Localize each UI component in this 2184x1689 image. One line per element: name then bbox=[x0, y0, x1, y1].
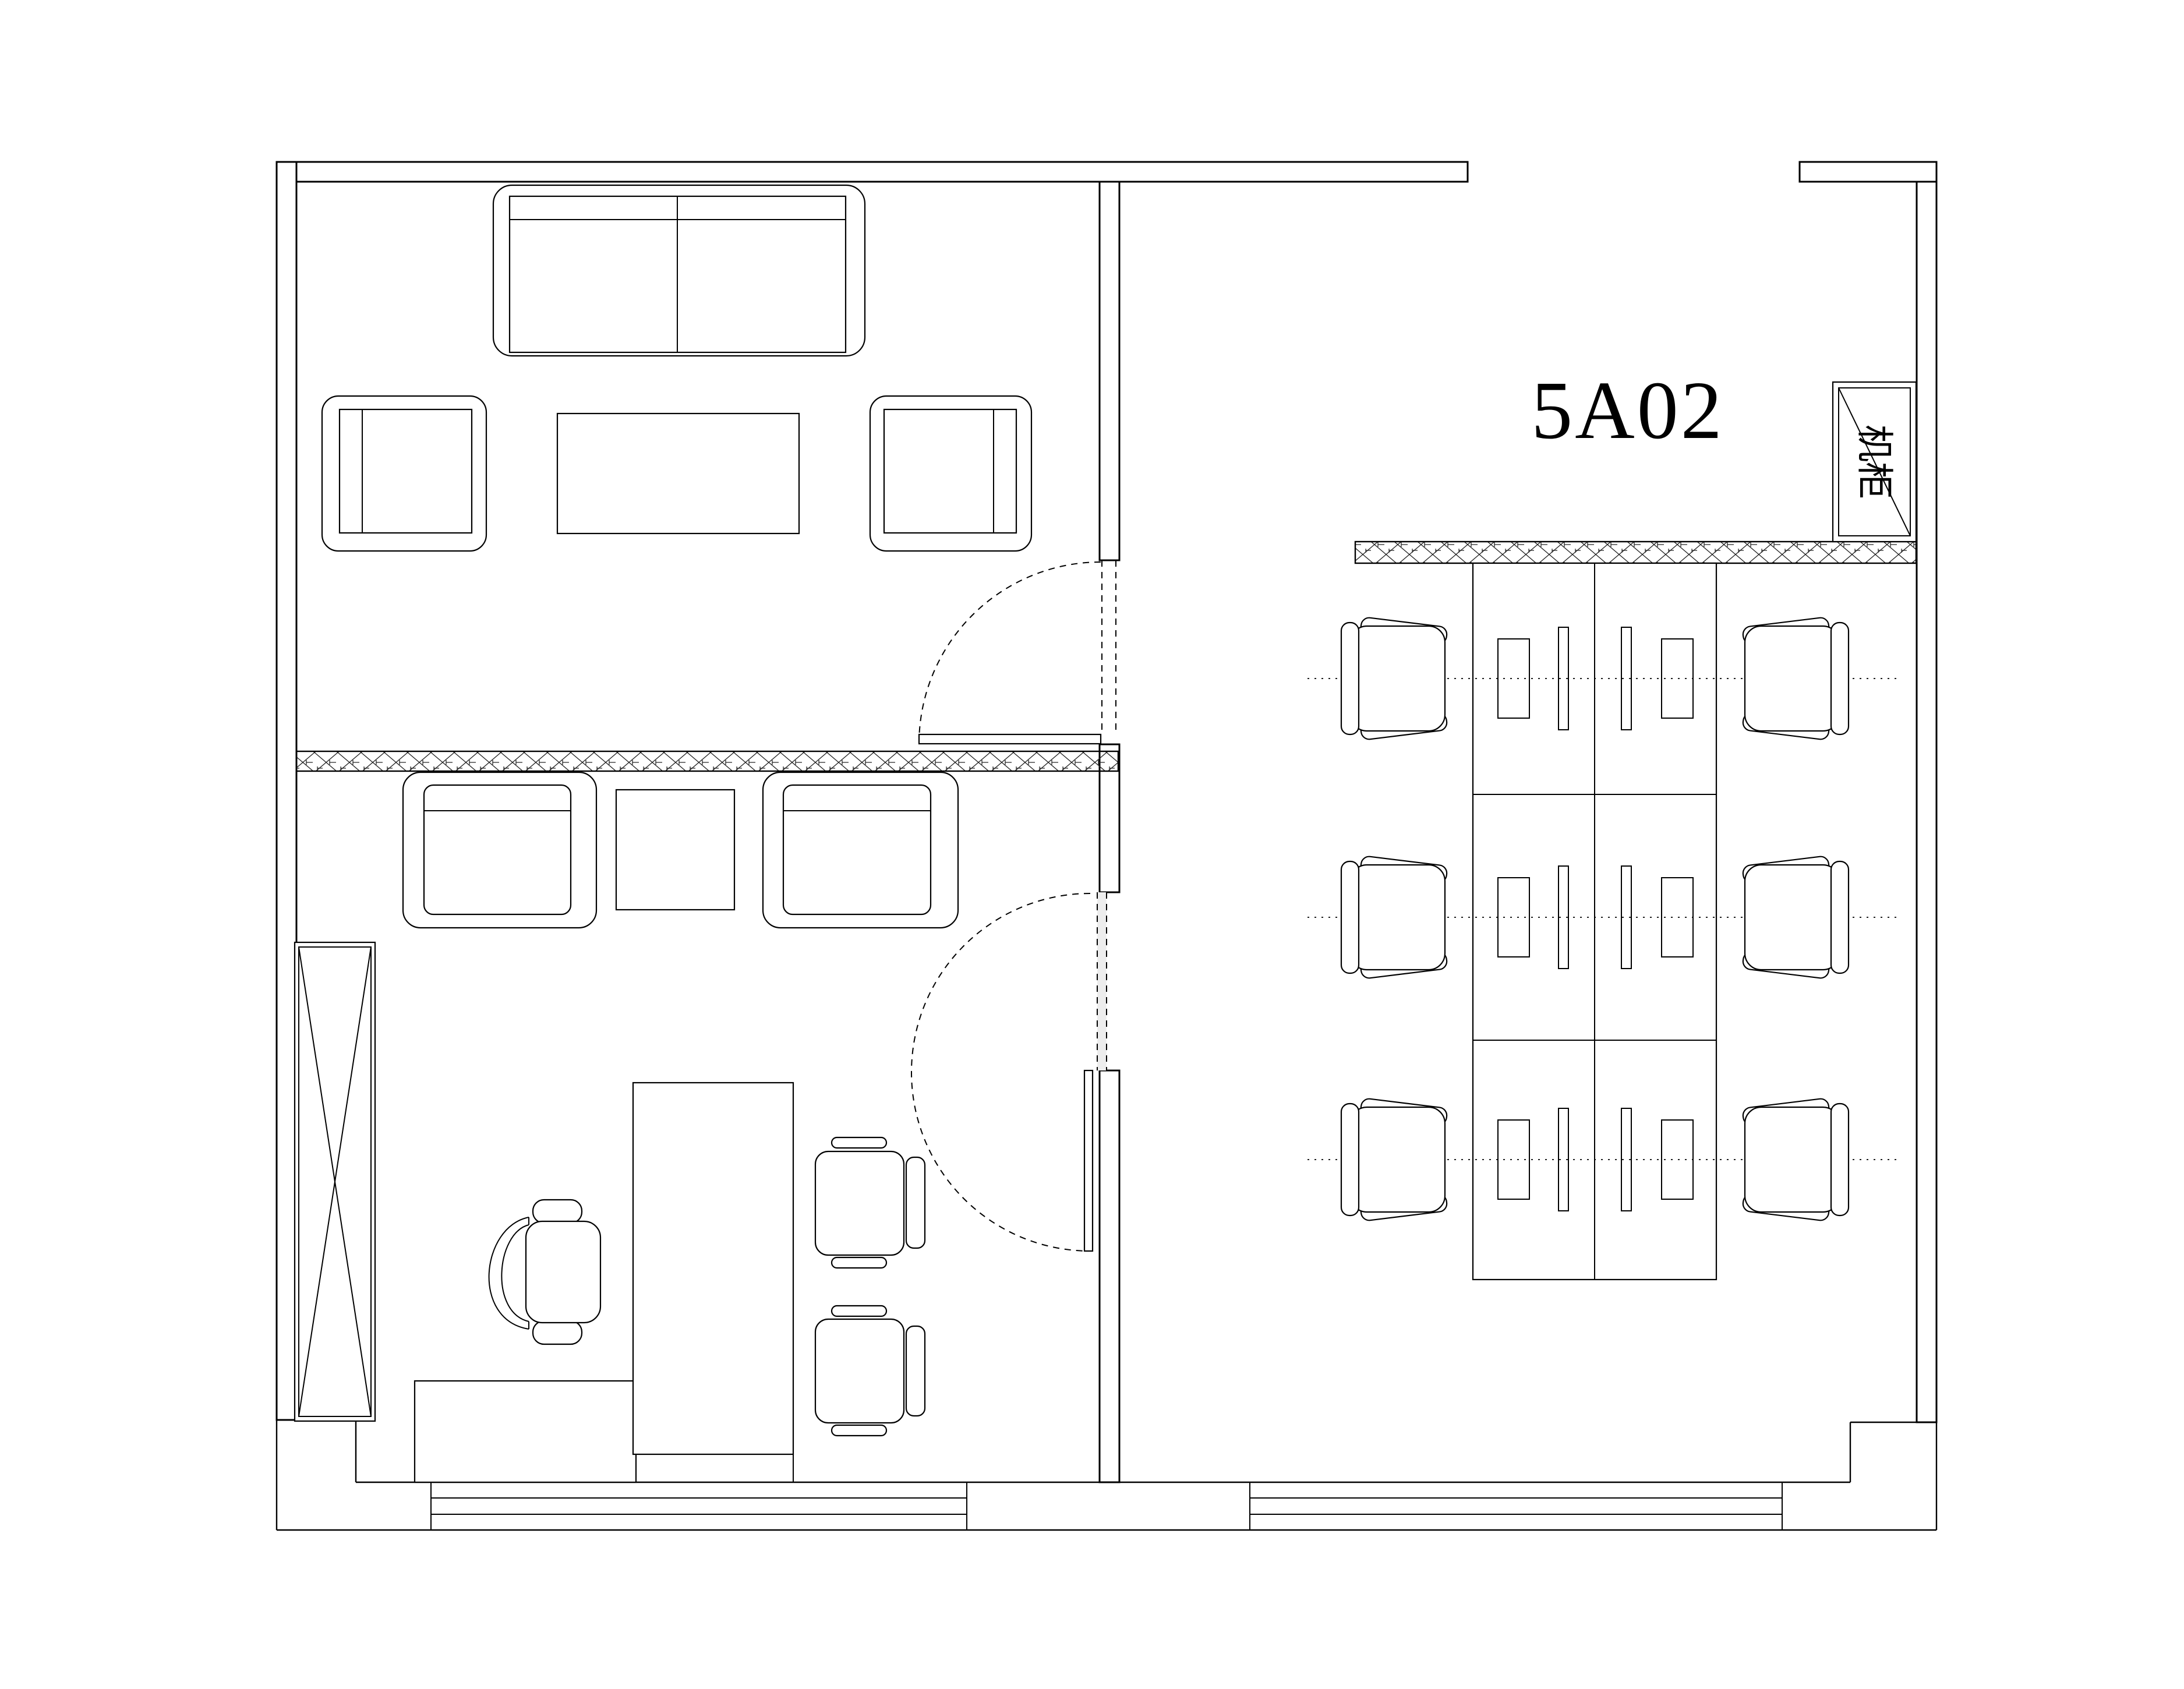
lounge-chair-seat bbox=[424, 785, 571, 914]
interior-partition bbox=[1100, 182, 1119, 1482]
reception-door-opening bbox=[1102, 560, 1116, 734]
office-door bbox=[911, 892, 1107, 1251]
room-number-label: 5A02 bbox=[1531, 364, 1724, 456]
visitor-chair-armrest-bottom bbox=[832, 1425, 886, 1436]
executive-chair-armrest-top bbox=[533, 1200, 582, 1223]
reception-door-leaf bbox=[919, 734, 1101, 744]
lounge-chair-left bbox=[403, 772, 596, 928]
visitor-chair-seat bbox=[815, 1151, 904, 1255]
visitor-chair-seat bbox=[815, 1319, 904, 1423]
visitor-chair-armrest-bottom bbox=[832, 1257, 886, 1268]
armchair-seat bbox=[884, 409, 1016, 533]
reception-sofa-set bbox=[322, 185, 1031, 551]
executive-chair-armrest-bottom bbox=[533, 1321, 582, 1344]
executive-desk-group bbox=[415, 1083, 793, 1482]
executive-chair-seat bbox=[526, 1221, 600, 1323]
visitor-chair-1 bbox=[815, 1137, 925, 1268]
window-left-panes bbox=[431, 1498, 967, 1514]
task-chair-left bbox=[1341, 617, 1448, 740]
executive-chair bbox=[489, 1200, 600, 1344]
office-lounge-set bbox=[403, 772, 958, 928]
reception-door bbox=[919, 560, 1116, 744]
bottom-right-wall-step bbox=[1850, 1422, 1936, 1530]
desk-return-cabinet bbox=[415, 1381, 636, 1482]
visitor-chair-armrest-top bbox=[832, 1306, 886, 1316]
task-chair-right bbox=[1742, 1098, 1849, 1221]
bottom-left-wall-step bbox=[277, 1420, 356, 1530]
reception-armchair-right bbox=[870, 396, 1031, 551]
floor-plan-canvas: 机柜 5A02 bbox=[0, 0, 2184, 1689]
partition-segment-top bbox=[1100, 182, 1119, 560]
coffee-table bbox=[557, 414, 799, 533]
server-cabinet: 机柜 bbox=[1833, 382, 1916, 542]
partition-segment-bottom bbox=[1100, 1070, 1119, 1482]
cabinet-label: 机柜 bbox=[1854, 425, 1895, 499]
lounge-chair-right bbox=[763, 772, 958, 928]
office-door-swing-arc bbox=[911, 893, 1090, 1251]
task-chair-right bbox=[1742, 856, 1849, 979]
two-seat-sofa bbox=[493, 185, 865, 356]
office-door-closed-leaf-fill bbox=[1097, 892, 1107, 1070]
task-chair-left bbox=[1341, 856, 1448, 979]
executive-desk bbox=[633, 1083, 793, 1454]
window-mullions bbox=[431, 1482, 1782, 1530]
workstation-desk-block bbox=[1473, 563, 1716, 1280]
top-wall-right-segment bbox=[1800, 162, 1936, 182]
task-chair-left bbox=[1341, 1098, 1448, 1221]
left-hatched-wall bbox=[296, 751, 1118, 771]
visitor-chair-armrest-top bbox=[832, 1137, 886, 1148]
top-wall-left-segment bbox=[277, 162, 1468, 182]
executive-chair-back bbox=[489, 1217, 529, 1329]
reception-door-swing-arc bbox=[919, 562, 1101, 744]
task-chair-right bbox=[1742, 617, 1849, 740]
bottom-windows bbox=[431, 1482, 1782, 1530]
lounge-chair-seat bbox=[783, 785, 931, 914]
window-right-panes bbox=[1250, 1498, 1782, 1514]
reception-armchair-left bbox=[322, 396, 486, 551]
office-door-leaf bbox=[1084, 1070, 1093, 1251]
visitor-chair-2 bbox=[815, 1306, 925, 1436]
armchair-seat bbox=[340, 409, 472, 533]
visitor-chair-back bbox=[906, 1157, 925, 1248]
shaft-wardrobe bbox=[295, 942, 375, 1421]
side-table bbox=[616, 790, 734, 910]
right-hatched-wall bbox=[1355, 542, 1916, 563]
left-wall bbox=[277, 162, 296, 1420]
visitor-chair-back bbox=[906, 1326, 925, 1416]
right-wall bbox=[1917, 182, 1936, 1422]
